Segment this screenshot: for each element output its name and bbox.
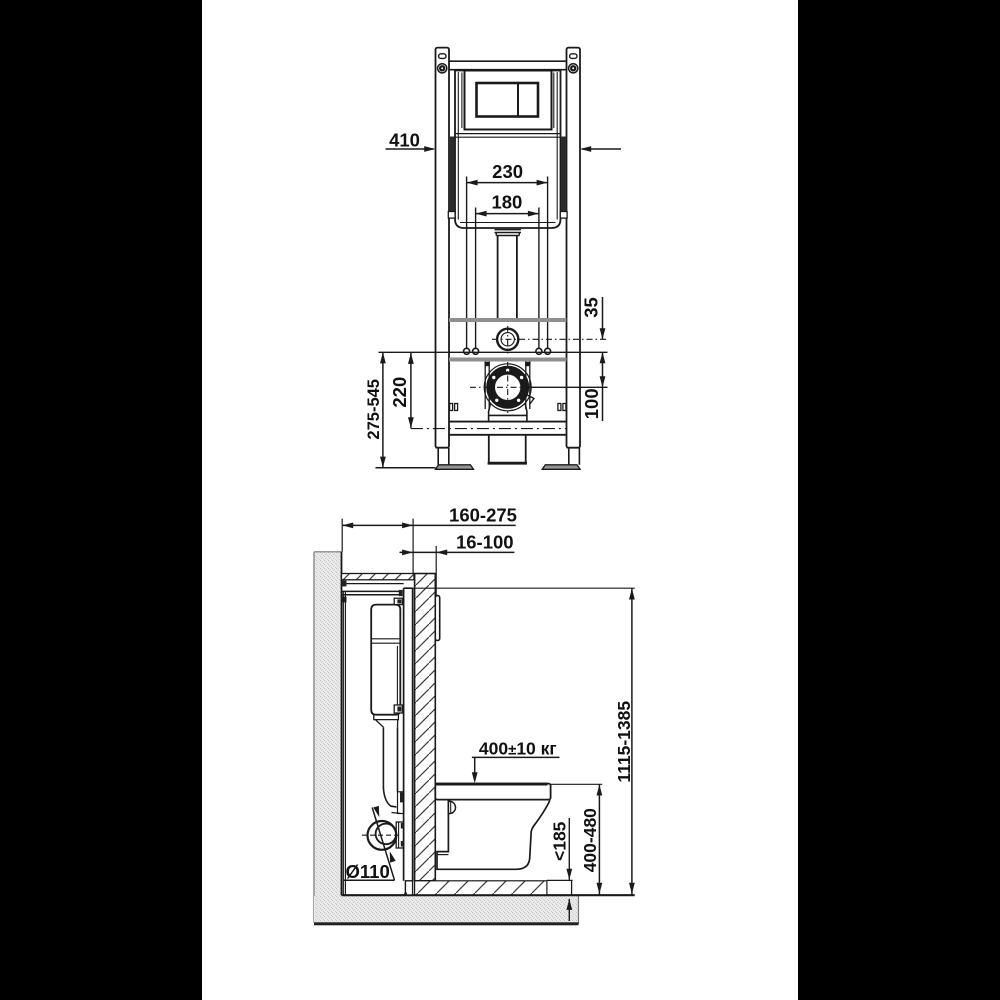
svg-text:100: 100 <box>581 388 602 419</box>
svg-text:275-545: 275-545 <box>365 379 383 440</box>
svg-text:160-275: 160-275 <box>449 505 517 526</box>
svg-text:1115-1385: 1115-1385 <box>614 701 634 783</box>
svg-text:230: 230 <box>492 161 523 182</box>
svg-text:Ø110: Ø110 <box>346 861 390 882</box>
svg-text:180: 180 <box>491 192 522 213</box>
svg-text:400-480: 400-480 <box>580 808 600 872</box>
svg-text:<185: <185 <box>550 821 570 861</box>
svg-text:35: 35 <box>580 297 601 318</box>
svg-text:220: 220 <box>389 377 410 408</box>
svg-text:410: 410 <box>389 130 420 151</box>
svg-text:400±10 кг: 400±10 кг <box>479 738 557 758</box>
svg-text:16-100: 16-100 <box>456 532 514 553</box>
